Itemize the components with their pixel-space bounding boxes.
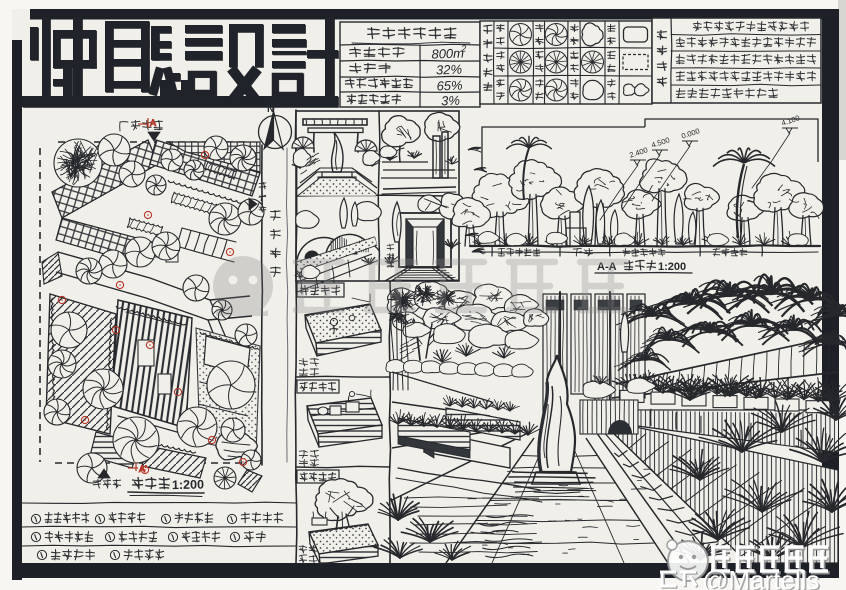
svg-text:65%: 65%: [436, 78, 463, 94]
svg-text:800m: 800m: [431, 46, 464, 62]
svg-text:@Martells: @Martells: [702, 565, 819, 590]
svg-text:32%: 32%: [436, 62, 463, 78]
svg-text:1:200: 1:200: [172, 478, 204, 493]
svg-text:1:200: 1:200: [658, 261, 686, 273]
svg-text:2: 2: [460, 43, 466, 53]
svg-text:3%: 3%: [441, 93, 460, 109]
svg-text:A: A: [150, 118, 156, 128]
